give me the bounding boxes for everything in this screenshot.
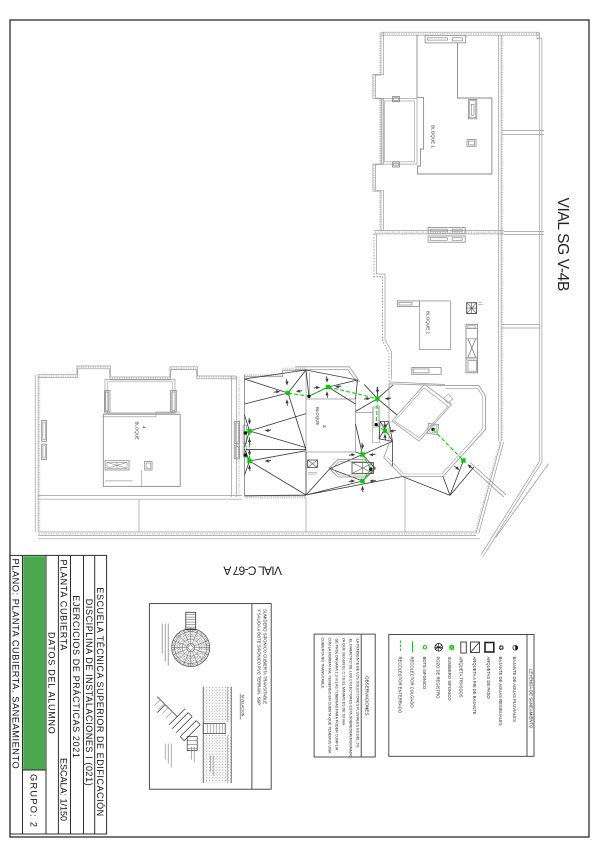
svg-text:-LA PENDIENTE DE LOS COLECTORE: -LA PENDIENTE DE LOS COLECTORES PLUVIALE… bbox=[356, 638, 360, 749]
svg-text:OBSERVACIONES: OBSERVACIONES bbox=[365, 676, 370, 715]
svg-text:3: 3 bbox=[322, 425, 327, 428]
svg-text:NIVELACION: NIVELACION bbox=[241, 695, 245, 717]
svg-text:VIAL SG V-4B: VIAL SG V-4B bbox=[554, 198, 571, 291]
svg-text:VIAL C-67 A: VIAL C-67 A bbox=[223, 564, 282, 578]
svg-text:BAJANTE DE AGUAS RESIDUALES: BAJANTE DE AGUAS RESIDUALES bbox=[498, 657, 503, 726]
svg-text:YA QUE SEGUN EL C.T.E EL MINIM: YA QUE SEGUN EL C.T.E EL MINIMO ES DE 63… bbox=[342, 638, 346, 726]
svg-text:CUBIERTA NO TRANSITABLE.: CUBIERTA NO TRANSITABLE. bbox=[321, 638, 325, 690]
svg-text:LEYENDA DE SANEAMIENTO: LEYENDA DE SANEAMIENTO bbox=[528, 669, 533, 729]
svg-text:ESCUELA TÉCNICA SUPERIOR DE ED: ESCUELA TÉCNICA SUPERIOR DE EDIFICACIÓN bbox=[95, 587, 105, 816]
svg-text:-EL DIAMETRO DE LOS COLECTORES: -EL DIAMETRO DE LOS COLECTORES ESTA SOBR… bbox=[349, 638, 353, 758]
svg-text:BLOQUE 2: BLOQUE 2 bbox=[426, 311, 431, 334]
svg-text:RECOLECTOR ENTERRADO: RECOLECTOR ENTERRADO bbox=[398, 657, 403, 714]
svg-text:BLOQUE: BLOQUE bbox=[315, 407, 320, 425]
svg-text:PLANTA CUBIERTA: PLANTA CUBIERTA bbox=[58, 560, 68, 652]
svg-text:4: 4 bbox=[142, 426, 147, 429]
svg-text:POZO DE REGISTRO: POZO DE REGISTRO bbox=[436, 657, 441, 700]
svg-text:BAJANTE DE AGUAS PLUVIALES: BAJANTE DE AGUAS PLUVIALES bbox=[512, 657, 517, 723]
svg-text:RECOLECTOR COLGADO: RECOLECTOR COLGADO bbox=[410, 657, 415, 709]
svg-text:BOTE SIFONICO: BOTE SIFONICO bbox=[422, 657, 427, 691]
svg-text:DATOS DEL ALUMNO: DATOS DEL ALUMNO bbox=[47, 632, 57, 735]
svg-text:EJERCICIOS DE PRÁCTICAS 2021: EJERCICIOS DE PRÁCTICAS 2021 bbox=[71, 595, 81, 758]
svg-text:ARQUETA A PIE DE BAJANTE: ARQUETA A PIE DE BAJANTE bbox=[472, 657, 477, 715]
svg-text:ARQUETAS DE PASO: ARQUETAS DE PASO bbox=[486, 657, 491, 700]
svg-text:ARQUETA TRASDOS: ARQUETA TRASDOS bbox=[459, 657, 464, 698]
svg-text:Y SALIDA A BOTE SIFONICO PVC T: Y SALIDA A BOTE SIFONICO PVC TERRAIN. S&… bbox=[257, 609, 262, 705]
svg-text:BLOQUE 1: BLOQUE 1 bbox=[431, 125, 436, 148]
svg-text:BLOQUE: BLOQUE bbox=[135, 422, 140, 440]
svg-text:DISCIPLINA DE INSTALACIONES I: DISCIPLINA DE INSTALACIONES I (021) bbox=[84, 599, 94, 787]
svg-text:SUMIDERO SIFONICO: SUMIDERO SIFONICO bbox=[447, 657, 452, 702]
svg-text:CON LA NORMATIVA, TENIENDO EN: CON LA NORMATIVA, TENIENDO EN CUENTA QUE… bbox=[328, 638, 332, 754]
svg-text:-SE PROLONGARA 1,3 m LAS TUBER: -SE PROLONGARA 1,3 m LAS TUBERIAS PARA P… bbox=[335, 638, 339, 751]
svg-text:SUMIDERO SIFONICO CUBIERTA TRA: SUMIDERO SIFONICO CUBIERTA TRANSITABLE bbox=[263, 609, 268, 704]
svg-text:GRUPO: 2: GRUPO: 2 bbox=[29, 774, 39, 828]
svg-text:ESCALA: 1/150: ESCALA: 1/150 bbox=[58, 758, 68, 821]
svg-text:PLANO: PLANTA CUBIERTA. SANEAM: PLANO: PLANTA CUBIERTA. SANEAMIENTO bbox=[11, 559, 21, 770]
